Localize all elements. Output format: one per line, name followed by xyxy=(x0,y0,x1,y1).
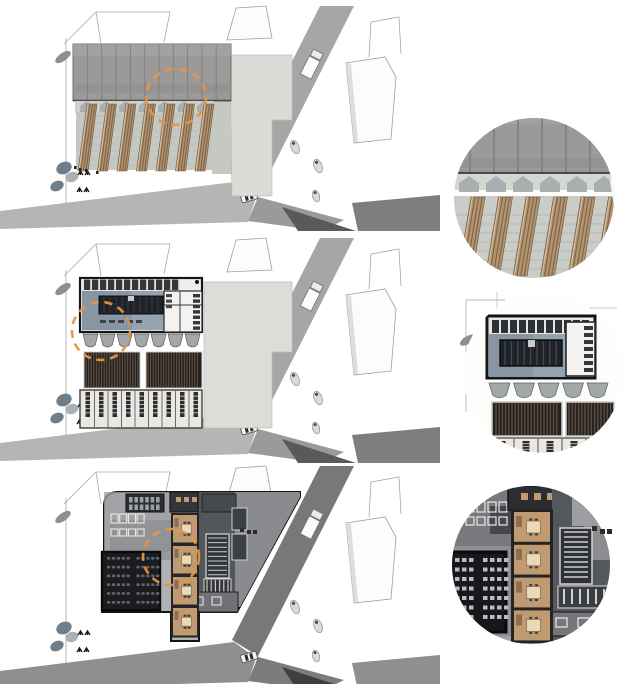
building-roof-plan xyxy=(73,44,292,196)
site-plan-diagram xyxy=(0,0,640,684)
detail-ground-plan xyxy=(450,486,624,646)
detail-roof-fins xyxy=(452,110,623,280)
wing-room xyxy=(572,492,606,526)
d3-rooms xyxy=(511,509,553,643)
shaft xyxy=(232,508,247,530)
building-upper-plan xyxy=(80,278,292,428)
detail-upper-plan xyxy=(463,293,623,454)
u-scallops xyxy=(83,334,200,347)
d2-shelves xyxy=(499,439,602,453)
wing-room xyxy=(202,494,236,512)
column-dot xyxy=(195,280,199,284)
d3-dots xyxy=(521,493,554,500)
g-dots xyxy=(176,497,197,502)
diagram-svg xyxy=(0,0,640,684)
shaft xyxy=(232,534,247,560)
u-right-bars2 xyxy=(166,294,172,308)
auditorium xyxy=(450,552,506,632)
stair xyxy=(558,586,610,608)
